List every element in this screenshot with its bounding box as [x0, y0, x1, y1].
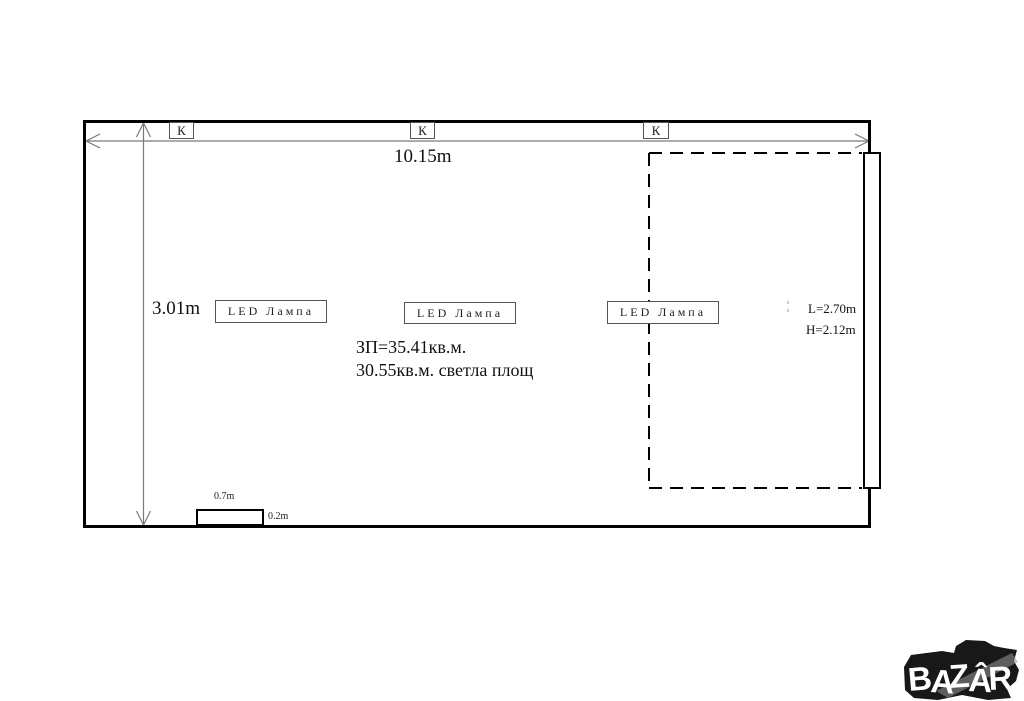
svg-text:R: R [987, 659, 1013, 697]
